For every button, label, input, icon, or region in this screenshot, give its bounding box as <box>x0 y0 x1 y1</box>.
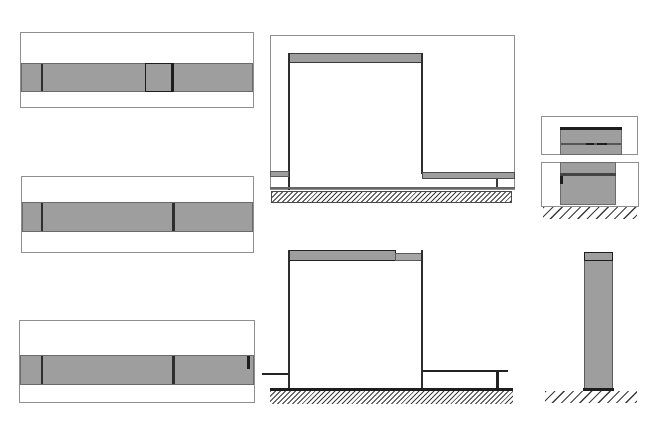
cabinet-block <box>560 162 616 205</box>
view-frame <box>541 116 638 155</box>
view-frame <box>270 35 515 190</box>
plan-view-middle <box>0 0 670 422</box>
band-divider-line-right <box>172 203 175 231</box>
shelf-line <box>561 143 621 145</box>
detail-section-upper <box>0 0 670 422</box>
ground-line <box>270 388 513 391</box>
shelf-dash-right <box>597 143 607 145</box>
shelf-dash-left <box>586 143 594 145</box>
module-outline <box>145 63 174 92</box>
band-divider-line <box>41 64 43 91</box>
band-end-tick <box>247 356 250 369</box>
view-frame <box>19 320 255 403</box>
wall-band <box>21 63 253 92</box>
band-divider-line-left <box>41 203 43 231</box>
pillar-side-view <box>0 0 670 422</box>
shelf-line <box>560 173 616 176</box>
detail-section-lower <box>0 0 670 422</box>
view-frame <box>21 176 254 253</box>
left-counter <box>270 171 289 177</box>
ground-hatch <box>545 391 637 403</box>
right-counter-line <box>423 370 508 372</box>
right-wall-line <box>421 53 423 174</box>
right-wall-line <box>421 250 423 389</box>
cabinet-top-edge <box>560 127 622 130</box>
pillar-body <box>584 252 613 390</box>
handle-mark <box>560 176 563 184</box>
right-counter-leg <box>496 179 498 189</box>
right-counter-leg <box>496 370 499 389</box>
top-beam-right <box>395 253 423 261</box>
pillar-base-line <box>583 388 614 391</box>
plan-view-top <box>0 0 670 422</box>
left-counter-line <box>262 373 288 375</box>
band-divider-line-left <box>41 356 43 384</box>
wall-band <box>22 202 253 232</box>
ground-hatch <box>543 207 637 219</box>
wall-band <box>20 355 254 385</box>
band-divider-line-right <box>172 356 175 384</box>
ground-hatch <box>271 191 512 203</box>
plan-view-bottom <box>0 0 670 422</box>
floor-line <box>270 187 515 189</box>
view-frame <box>541 162 639 207</box>
left-wall-line <box>288 53 290 190</box>
elevation-front <box>0 0 670 422</box>
cabinet-block <box>560 127 622 155</box>
pillar-cap <box>584 252 613 261</box>
ground-hatch <box>270 391 513 404</box>
left-wall-line <box>288 250 290 389</box>
module-right-edge <box>171 63 174 92</box>
view-frame <box>20 32 254 108</box>
top-beam <box>288 53 423 63</box>
drawing-canvas <box>0 0 670 422</box>
right-counter <box>422 172 515 179</box>
elevation-section <box>0 0 670 422</box>
top-beam-left <box>288 250 396 261</box>
